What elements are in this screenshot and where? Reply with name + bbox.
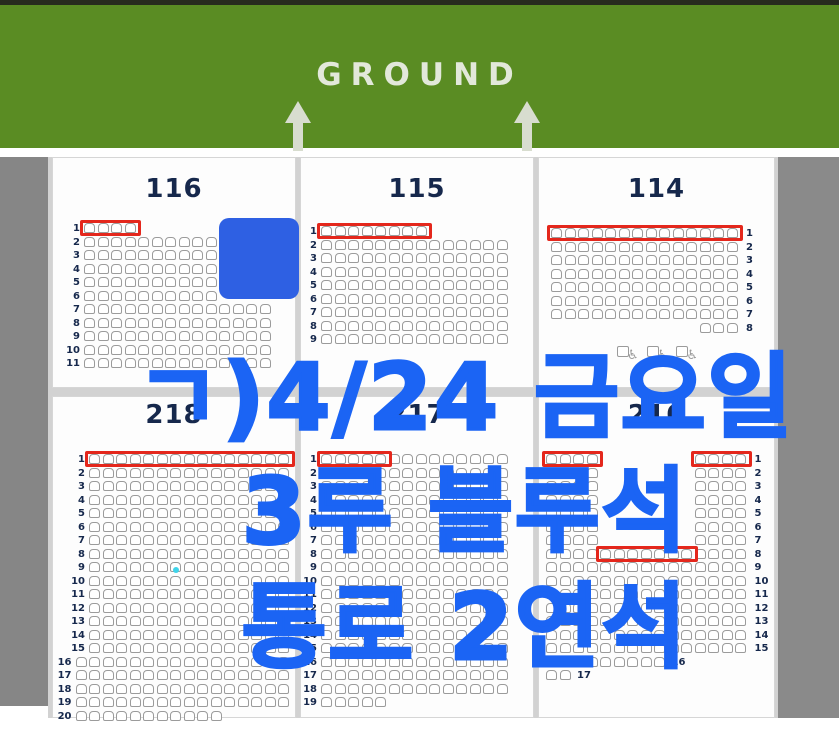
seat[interactable]	[130, 481, 141, 491]
seat[interactable]	[695, 603, 706, 613]
seat[interactable]	[130, 495, 141, 505]
seat[interactable]	[103, 603, 114, 613]
seat[interactable]	[238, 684, 249, 694]
seat[interactable]	[125, 345, 136, 355]
seat[interactable]	[170, 522, 181, 532]
seat[interactable]	[470, 321, 481, 331]
seat[interactable]	[157, 535, 168, 545]
seat[interactable]	[578, 296, 589, 306]
seat[interactable]	[170, 630, 181, 640]
seat[interactable]	[673, 282, 684, 292]
seat[interactable]	[695, 562, 706, 572]
seat[interactable]	[157, 711, 168, 721]
seat[interactable]	[89, 697, 100, 707]
seat[interactable]	[278, 684, 289, 694]
seat[interactable]	[619, 296, 630, 306]
seat[interactable]	[152, 264, 163, 274]
seat[interactable]	[130, 562, 141, 572]
seat[interactable]	[165, 237, 176, 247]
seat[interactable]	[206, 318, 217, 328]
seat[interactable]	[125, 331, 136, 341]
seat[interactable]	[103, 576, 114, 586]
seat[interactable]	[211, 549, 222, 559]
seat[interactable]	[143, 562, 154, 572]
seat[interactable]	[184, 468, 195, 478]
seat[interactable]	[116, 711, 127, 721]
seat[interactable]	[727, 255, 738, 265]
seat[interactable]	[211, 711, 222, 721]
seat[interactable]	[157, 562, 168, 572]
seat[interactable]	[265, 684, 276, 694]
seat[interactable]	[727, 282, 738, 292]
seat[interactable]	[722, 508, 733, 518]
seat[interactable]	[103, 508, 114, 518]
seat[interactable]	[735, 549, 746, 559]
seat[interactable]	[416, 294, 427, 304]
seat[interactable]	[157, 549, 168, 559]
seat[interactable]	[157, 481, 168, 491]
seat[interactable]	[116, 670, 127, 680]
seat[interactable]	[362, 697, 373, 707]
seat[interactable]	[130, 603, 141, 613]
seat[interactable]	[211, 481, 222, 491]
seat[interactable]	[735, 603, 746, 613]
seat[interactable]	[184, 508, 195, 518]
seat[interactable]	[138, 237, 149, 247]
seat[interactable]	[219, 331, 230, 341]
seat[interactable]	[708, 522, 719, 532]
seat[interactable]	[206, 331, 217, 341]
seat[interactable]	[116, 643, 127, 653]
seat[interactable]	[321, 253, 332, 263]
seat[interactable]	[735, 562, 746, 572]
seat[interactable]	[700, 282, 711, 292]
seat[interactable]	[197, 508, 208, 518]
seat[interactable]	[170, 481, 181, 491]
seat[interactable]	[443, 253, 454, 263]
seat[interactable]	[695, 616, 706, 626]
seat[interactable]	[708, 562, 719, 572]
seat[interactable]	[497, 307, 508, 317]
seat[interactable]	[130, 522, 141, 532]
seat[interactable]	[103, 697, 114, 707]
seat[interactable]	[197, 522, 208, 532]
seat[interactable]	[179, 250, 190, 260]
seat[interactable]	[103, 481, 114, 491]
seat[interactable]	[335, 697, 346, 707]
seat[interactable]	[211, 562, 222, 572]
seat[interactable]	[659, 296, 670, 306]
seat[interactable]	[497, 267, 508, 277]
seat[interactable]	[722, 562, 733, 572]
seat[interactable]	[321, 321, 332, 331]
seat[interactable]	[659, 282, 670, 292]
seat[interactable]	[470, 294, 481, 304]
seat[interactable]	[84, 250, 95, 260]
seat[interactable]	[233, 318, 244, 328]
seat[interactable]	[98, 237, 109, 247]
seat[interactable]	[443, 334, 454, 344]
seat[interactable]	[402, 280, 413, 290]
seat[interactable]	[348, 697, 359, 707]
seat[interactable]	[224, 630, 235, 640]
seat[interactable]	[170, 589, 181, 599]
seat[interactable]	[165, 291, 176, 301]
seat[interactable]	[735, 643, 746, 653]
seat[interactable]	[727, 309, 738, 319]
seat[interactable]	[89, 481, 100, 491]
seat[interactable]	[143, 684, 154, 694]
seat[interactable]	[632, 242, 643, 252]
seat[interactable]	[578, 282, 589, 292]
seat[interactable]	[456, 294, 467, 304]
seat[interactable]	[443, 684, 454, 694]
seat[interactable]	[429, 280, 440, 290]
seat[interactable]	[116, 576, 127, 586]
seat[interactable]	[735, 589, 746, 599]
seat[interactable]	[722, 495, 733, 505]
seat[interactable]	[722, 589, 733, 599]
seat[interactable]	[700, 269, 711, 279]
seat[interactable]	[348, 240, 359, 250]
seat[interactable]	[362, 294, 373, 304]
seat[interactable]	[456, 321, 467, 331]
seat[interactable]	[219, 304, 230, 314]
seat[interactable]	[497, 240, 508, 250]
seat[interactable]	[184, 616, 195, 626]
seat[interactable]	[89, 562, 100, 572]
seat[interactable]	[700, 255, 711, 265]
seat[interactable]	[197, 481, 208, 491]
seat[interactable]	[695, 495, 706, 505]
seat[interactable]	[335, 684, 346, 694]
seat[interactable]	[695, 481, 706, 491]
seat[interactable]	[695, 576, 706, 586]
seat[interactable]	[735, 468, 746, 478]
seat[interactable]	[389, 294, 400, 304]
seat[interactable]	[184, 535, 195, 545]
seat[interactable]	[375, 334, 386, 344]
seat[interactable]	[708, 576, 719, 586]
seat[interactable]	[735, 481, 746, 491]
seat[interactable]	[224, 535, 235, 545]
seat[interactable]	[673, 242, 684, 252]
seat[interactable]	[157, 616, 168, 626]
seat[interactable]	[722, 481, 733, 491]
seat[interactable]	[713, 323, 724, 333]
seat[interactable]	[138, 331, 149, 341]
seat[interactable]	[143, 670, 154, 680]
seat[interactable]	[483, 334, 494, 344]
seat[interactable]	[224, 522, 235, 532]
seat[interactable]	[695, 589, 706, 599]
seat[interactable]	[402, 294, 413, 304]
seat[interactable]	[483, 684, 494, 694]
seat[interactable]	[143, 549, 154, 559]
seat[interactable]	[735, 576, 746, 586]
seat[interactable]	[646, 269, 657, 279]
seat[interactable]	[686, 296, 697, 306]
seat[interactable]	[125, 318, 136, 328]
seat[interactable]	[89, 508, 100, 518]
seat[interactable]	[143, 468, 154, 478]
seat[interactable]	[152, 318, 163, 328]
seat[interactable]	[348, 321, 359, 331]
seat[interactable]	[686, 255, 697, 265]
seat[interactable]	[138, 277, 149, 287]
seat[interactable]	[111, 345, 122, 355]
seat[interactable]	[125, 277, 136, 287]
seat[interactable]	[89, 657, 100, 667]
seat[interactable]	[605, 282, 616, 292]
seat[interactable]	[116, 562, 127, 572]
seat[interactable]	[84, 331, 95, 341]
seat[interactable]	[632, 309, 643, 319]
seat[interactable]	[659, 269, 670, 279]
seat[interactable]	[224, 549, 235, 559]
seat[interactable]	[470, 267, 481, 277]
seat[interactable]	[206, 277, 217, 287]
seat[interactable]	[138, 291, 149, 301]
seat[interactable]	[551, 255, 562, 265]
seat[interactable]	[111, 358, 122, 368]
seat[interactable]	[700, 242, 711, 252]
seat[interactable]	[211, 697, 222, 707]
seat[interactable]	[735, 616, 746, 626]
seat[interactable]	[98, 291, 109, 301]
seat[interactable]	[211, 657, 222, 667]
seat[interactable]	[211, 535, 222, 545]
seat[interactable]	[192, 250, 203, 260]
seat[interactable]	[157, 684, 168, 694]
seat[interactable]	[321, 267, 332, 277]
seat[interactable]	[443, 267, 454, 277]
seat[interactable]	[125, 291, 136, 301]
seat[interactable]	[103, 562, 114, 572]
seat[interactable]	[722, 549, 733, 559]
seat[interactable]	[157, 697, 168, 707]
seat[interactable]	[375, 307, 386, 317]
seat[interactable]	[233, 304, 244, 314]
seat[interactable]	[116, 616, 127, 626]
seat[interactable]	[211, 508, 222, 518]
seat[interactable]	[130, 697, 141, 707]
seat[interactable]	[695, 643, 706, 653]
seat[interactable]	[578, 309, 589, 319]
seat[interactable]	[456, 280, 467, 290]
seat[interactable]	[192, 318, 203, 328]
seat[interactable]	[98, 250, 109, 260]
seat[interactable]	[592, 309, 603, 319]
seat[interactable]	[197, 576, 208, 586]
seat[interactable]	[389, 280, 400, 290]
seat[interactable]	[143, 603, 154, 613]
seat[interactable]	[184, 603, 195, 613]
seat[interactable]	[138, 304, 149, 314]
seat[interactable]	[416, 267, 427, 277]
seat[interactable]	[565, 255, 576, 265]
seat[interactable]	[89, 603, 100, 613]
seat[interactable]	[362, 240, 373, 250]
seat[interactable]	[184, 670, 195, 680]
seat[interactable]	[375, 294, 386, 304]
seat[interactable]	[708, 603, 719, 613]
seat[interactable]	[152, 250, 163, 260]
seat[interactable]	[143, 711, 154, 721]
seat[interactable]	[321, 294, 332, 304]
seat[interactable]	[619, 242, 630, 252]
seat[interactable]	[103, 468, 114, 478]
seat[interactable]	[402, 267, 413, 277]
seat[interactable]	[483, 321, 494, 331]
seat[interactable]	[695, 630, 706, 640]
seat[interactable]	[89, 468, 100, 478]
seat[interactable]	[192, 264, 203, 274]
seat[interactable]	[157, 589, 168, 599]
seat[interactable]	[89, 549, 100, 559]
seat[interactable]	[497, 684, 508, 694]
seat[interactable]	[646, 309, 657, 319]
seat[interactable]	[551, 269, 562, 279]
seat[interactable]	[130, 616, 141, 626]
seat[interactable]	[722, 616, 733, 626]
seat[interactable]	[708, 508, 719, 518]
seat[interactable]	[348, 334, 359, 344]
seat[interactable]	[402, 307, 413, 317]
seat[interactable]	[89, 711, 100, 721]
seat[interactable]	[98, 318, 109, 328]
seat[interactable]	[143, 589, 154, 599]
seat[interactable]	[170, 535, 181, 545]
seat[interactable]	[138, 264, 149, 274]
seat[interactable]	[206, 264, 217, 274]
seat[interactable]	[708, 468, 719, 478]
seat[interactable]	[686, 309, 697, 319]
seat[interactable]	[321, 307, 332, 317]
seat[interactable]	[483, 240, 494, 250]
seat[interactable]	[416, 240, 427, 250]
seat[interactable]	[192, 277, 203, 287]
seat[interactable]	[565, 242, 576, 252]
seat[interactable]	[632, 269, 643, 279]
seat[interactable]	[206, 291, 217, 301]
seat[interactable]	[224, 657, 235, 667]
seat[interactable]	[278, 697, 289, 707]
seat[interactable]	[695, 535, 706, 545]
seat[interactable]	[429, 307, 440, 317]
seat[interactable]	[143, 495, 154, 505]
seat[interactable]	[211, 684, 222, 694]
seat[interactable]	[179, 237, 190, 247]
seat[interactable]	[116, 589, 127, 599]
seat[interactable]	[197, 684, 208, 694]
seat[interactable]	[375, 280, 386, 290]
seat[interactable]	[165, 304, 176, 314]
seat[interactable]	[619, 255, 630, 265]
seat[interactable]	[111, 237, 122, 247]
seat[interactable]	[76, 657, 87, 667]
seat[interactable]	[76, 711, 87, 721]
seat[interactable]	[708, 535, 719, 545]
seat[interactable]	[389, 307, 400, 317]
seat[interactable]	[184, 657, 195, 667]
seat[interactable]	[224, 616, 235, 626]
seat[interactable]	[89, 616, 100, 626]
seat[interactable]	[103, 535, 114, 545]
seat[interactable]	[659, 309, 670, 319]
seat[interactable]	[238, 697, 249, 707]
seat[interactable]	[592, 255, 603, 265]
seat[interactable]	[143, 508, 154, 518]
seat[interactable]	[686, 282, 697, 292]
seat[interactable]	[197, 535, 208, 545]
seat[interactable]	[184, 562, 195, 572]
seat[interactable]	[89, 630, 100, 640]
seat[interactable]	[673, 269, 684, 279]
seat[interactable]	[708, 616, 719, 626]
seat[interactable]	[416, 334, 427, 344]
seat[interactable]	[89, 535, 100, 545]
seat[interactable]	[429, 240, 440, 250]
seat[interactable]	[389, 267, 400, 277]
seat[interactable]	[429, 294, 440, 304]
seat[interactable]	[713, 242, 724, 252]
seat[interactable]	[456, 267, 467, 277]
seat[interactable]	[89, 589, 100, 599]
seat[interactable]	[251, 697, 262, 707]
seat[interactable]	[389, 321, 400, 331]
seat[interactable]	[179, 331, 190, 341]
seat[interactable]	[375, 697, 386, 707]
seat[interactable]	[130, 589, 141, 599]
seat[interactable]	[619, 269, 630, 279]
seat[interactable]	[335, 253, 346, 263]
seat[interactable]	[192, 304, 203, 314]
seat[interactable]	[184, 549, 195, 559]
seat[interactable]	[143, 576, 154, 586]
seat[interactable]	[321, 334, 332, 344]
seat[interactable]	[111, 331, 122, 341]
seat[interactable]	[578, 242, 589, 252]
seat[interactable]	[429, 684, 440, 694]
seat[interactable]	[157, 643, 168, 653]
seat[interactable]	[170, 495, 181, 505]
seat[interactable]	[130, 643, 141, 653]
seat[interactable]	[565, 269, 576, 279]
seat[interactable]	[211, 522, 222, 532]
seat[interactable]	[362, 684, 373, 694]
seat[interactable]	[211, 589, 222, 599]
seat[interactable]	[362, 334, 373, 344]
seat[interactable]	[179, 291, 190, 301]
seat[interactable]	[143, 481, 154, 491]
seat[interactable]	[84, 264, 95, 274]
seat[interactable]	[619, 282, 630, 292]
seat[interactable]	[111, 264, 122, 274]
seat[interactable]	[130, 711, 141, 721]
seat[interactable]	[335, 267, 346, 277]
seat[interactable]	[348, 294, 359, 304]
seat[interactable]	[362, 253, 373, 263]
seat[interactable]	[362, 307, 373, 317]
seat[interactable]	[735, 630, 746, 640]
seat[interactable]	[497, 321, 508, 331]
seat[interactable]	[632, 255, 643, 265]
seat[interactable]	[348, 267, 359, 277]
seat[interactable]	[224, 495, 235, 505]
seat[interactable]	[646, 255, 657, 265]
seat[interactable]	[179, 304, 190, 314]
